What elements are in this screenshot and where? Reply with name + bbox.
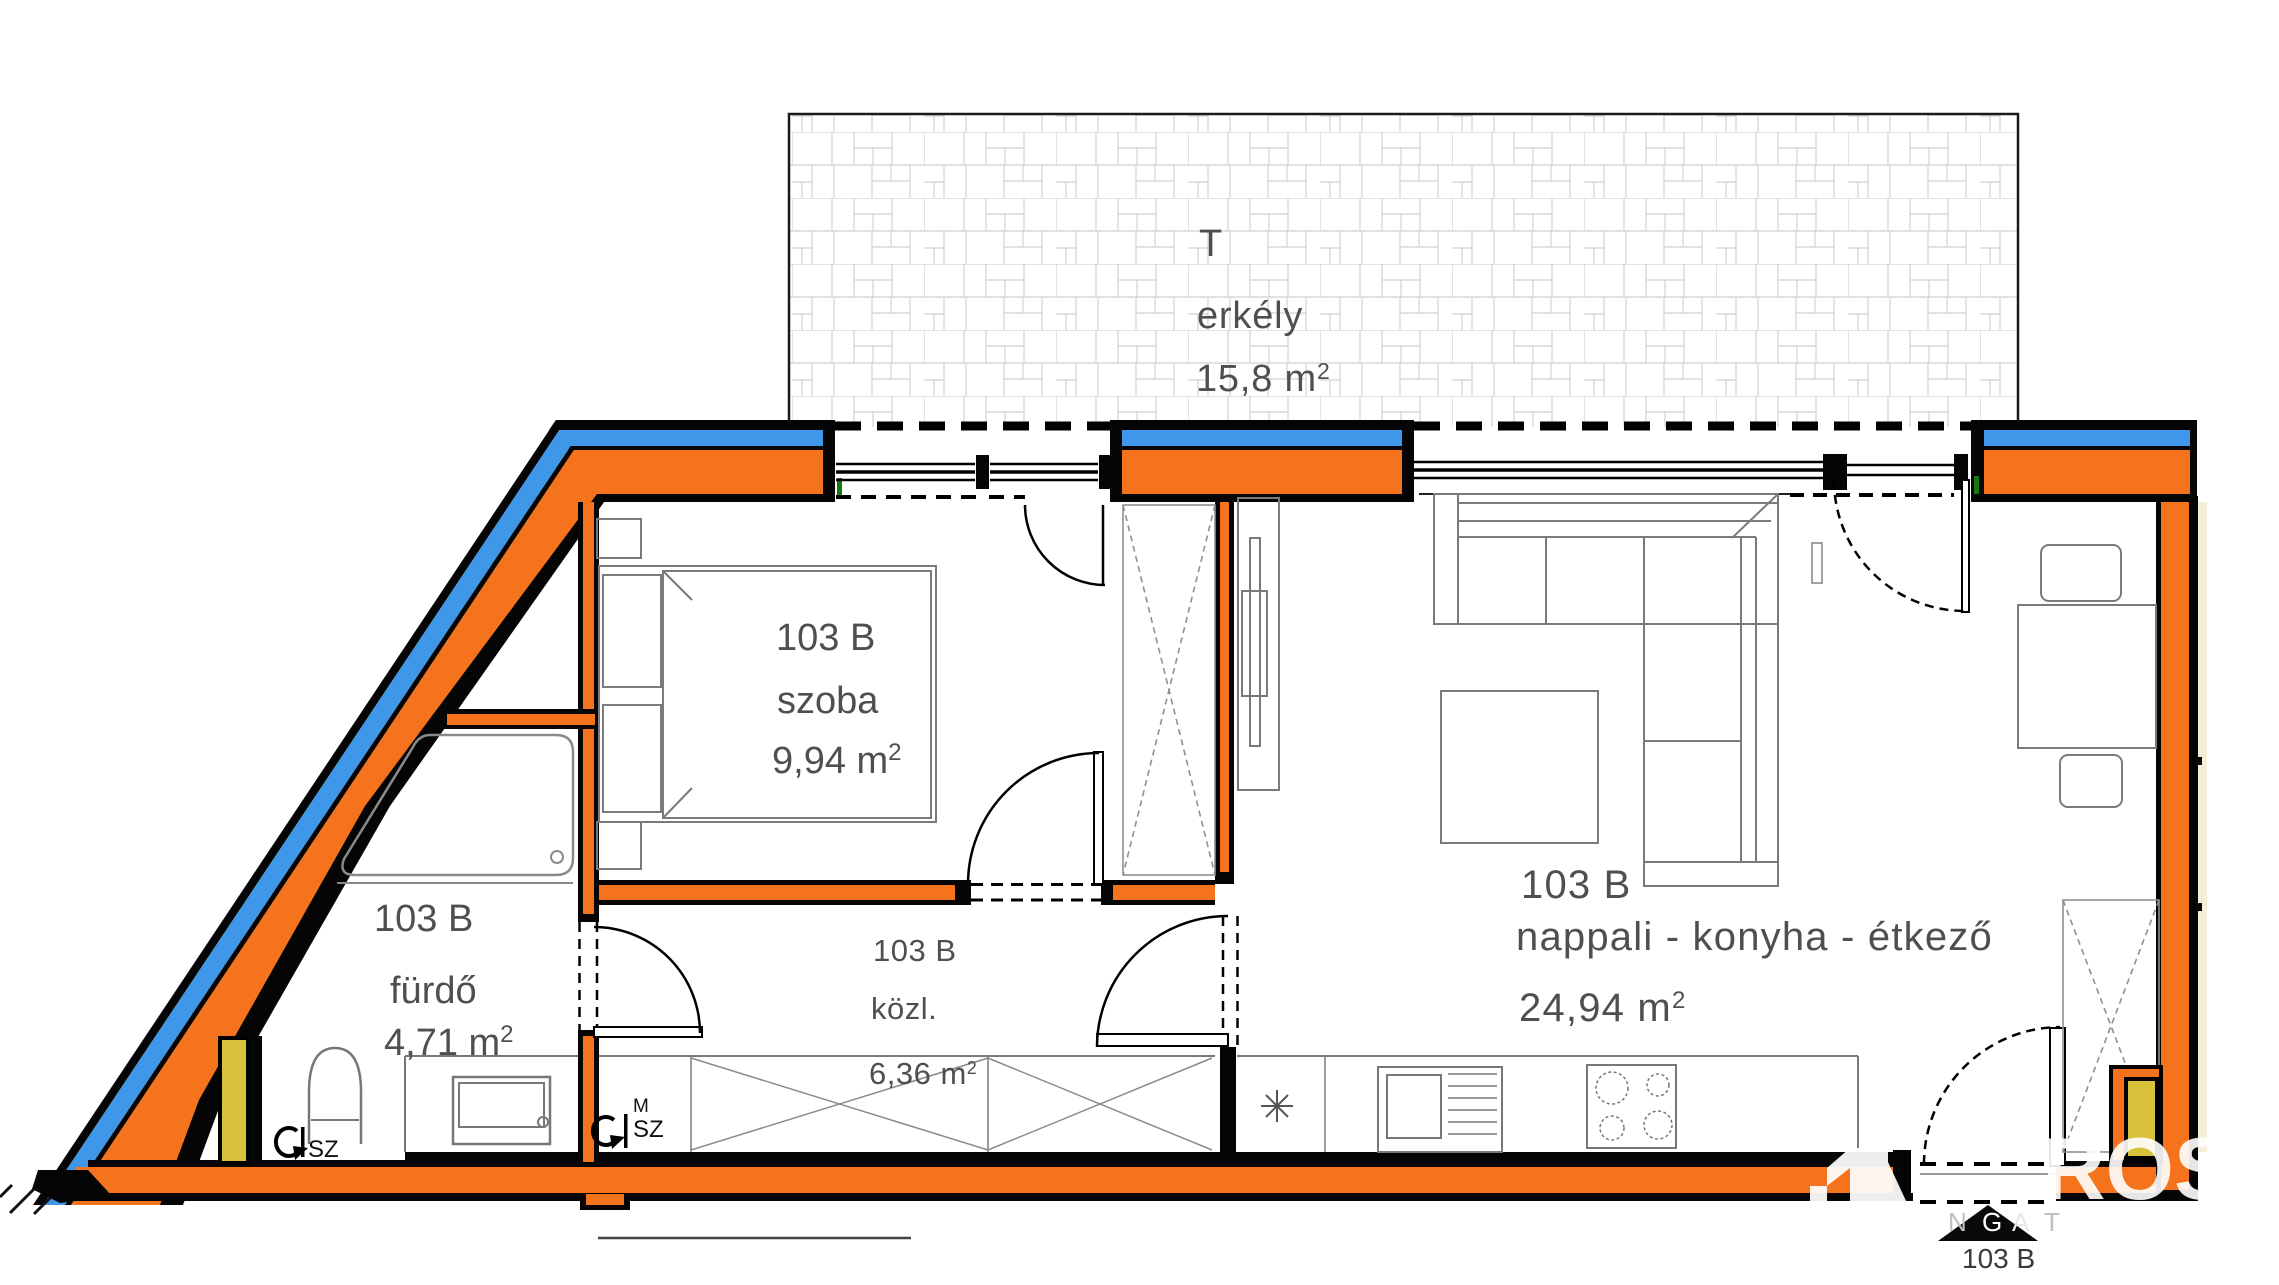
svg-text:15,8 m2: 15,8 m2 bbox=[1196, 358, 1331, 400]
svg-text:G: G bbox=[1982, 1207, 2002, 1237]
svg-text:T: T bbox=[2044, 1207, 2060, 1237]
svg-text:T: T bbox=[1199, 223, 1223, 265]
svg-text:103 B: 103 B bbox=[1962, 1243, 2035, 1274]
svg-text:SZ: SZ bbox=[633, 1116, 664, 1143]
svg-text:fürdő: fürdő bbox=[390, 970, 477, 1012]
svg-text:103 B: 103 B bbox=[1521, 863, 1632, 907]
svg-text:M: M bbox=[633, 1096, 649, 1117]
svg-text:ROS: ROS bbox=[2042, 1119, 2233, 1218]
svg-text:szoba: szoba bbox=[777, 680, 879, 722]
svg-text:A: A bbox=[2012, 1207, 2030, 1237]
svg-text:6,36 m2: 6,36 m2 bbox=[869, 1056, 977, 1091]
svg-text:erkély: erkély bbox=[1197, 295, 1303, 337]
svg-text:közl.: közl. bbox=[871, 991, 937, 1026]
svg-text:9,94 m2: 9,94 m2 bbox=[772, 739, 902, 782]
svg-text:SZ: SZ bbox=[308, 1136, 339, 1163]
svg-text:N: N bbox=[1948, 1207, 1967, 1237]
svg-text:103 B: 103 B bbox=[873, 933, 957, 968]
svg-text:24,94 m2: 24,94 m2 bbox=[1519, 986, 1687, 1030]
svg-text:4,71 m2: 4,71 m2 bbox=[384, 1021, 514, 1064]
svg-text:103 B: 103 B bbox=[776, 617, 875, 659]
svg-text:nappali - konyha - étkező: nappali - konyha - étkező bbox=[1516, 915, 1993, 959]
svg-text:103 B: 103 B bbox=[374, 898, 473, 940]
